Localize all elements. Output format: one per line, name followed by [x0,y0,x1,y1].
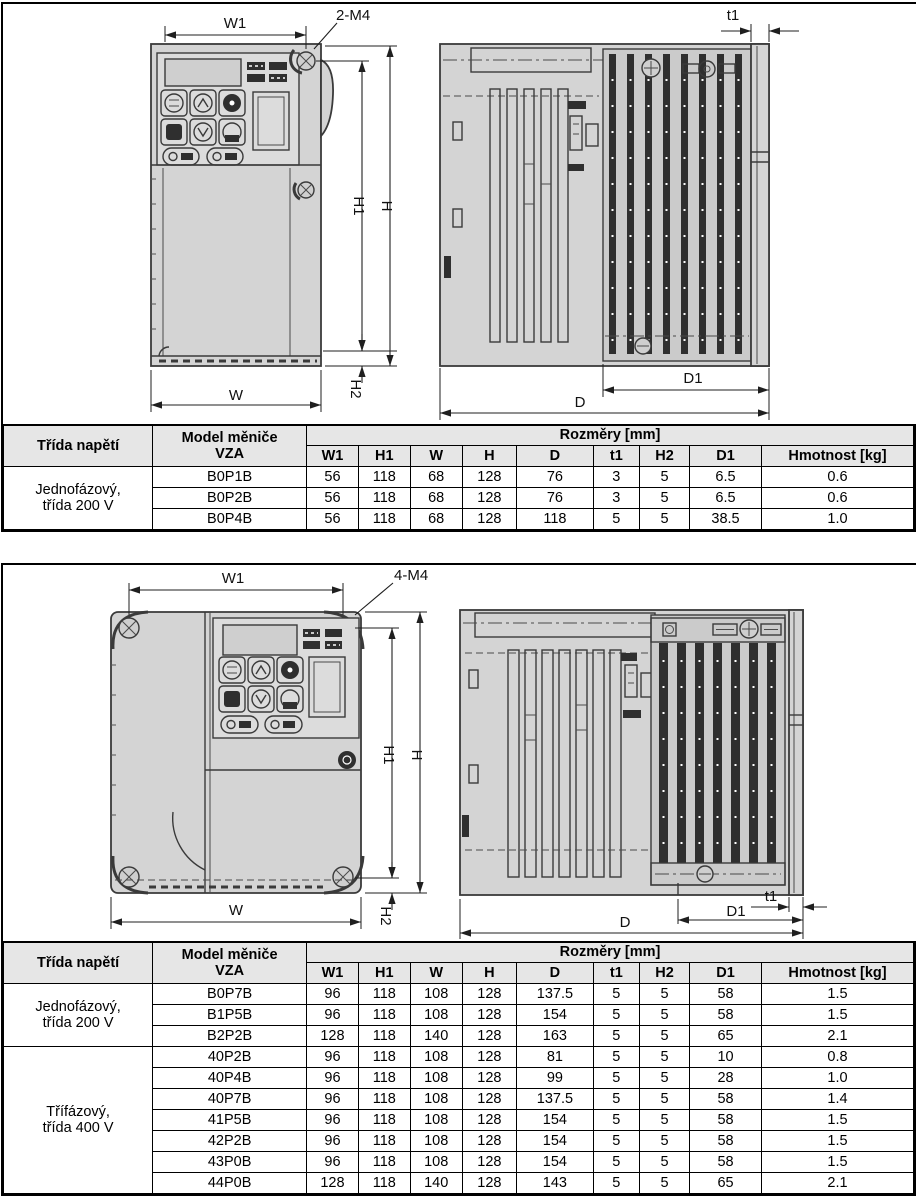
screw-slot-icon [697,866,713,882]
dim-value-cell: 128 [462,1005,517,1026]
dim-value-cell: 5 [593,1005,639,1026]
dim-value-cell: 108 [410,1131,462,1152]
header-col-d: D [517,446,593,467]
header-col-d1: D1 [690,963,762,984]
dim-w: W [151,370,321,412]
front-view-large: W1 4-M4 H H1 [111,567,428,929]
model-cell: B1P5B [153,1005,307,1026]
dim-value-cell: 5 [593,1089,639,1110]
side-view-small: t1 D1 D [440,7,799,420]
dim-value-cell: 143 [517,1173,593,1194]
dim-label-d: D [620,914,631,931]
dim-value-cell: 1.5 [761,1152,913,1173]
dim-value-cell: 56 [307,488,359,509]
header-col-w1: W1 [307,446,359,467]
header-col-h: H [462,963,517,984]
dim-value-cell: 5 [593,1110,639,1131]
screw-mid-right-icon [338,751,356,769]
voltage-class-cell: Jednofázový,třída 200 V [4,984,153,1047]
dim-value-cell: 154 [517,1131,593,1152]
mounting-flange [789,610,803,895]
dim-value-cell: 128 [462,488,517,509]
header-col-w: W [410,446,462,467]
dim-value-cell: 137.5 [517,1089,593,1110]
dim-value-cell: 0.8 [761,1047,913,1068]
dim-label-d1: D1 [683,370,702,387]
dim-value-cell: 140 [410,1173,462,1194]
dim-d: D [440,368,769,420]
dim-m4: 2-M4 [314,7,370,49]
header-dimensions: Rozměry [mm] [307,942,914,963]
dim-value-cell: 128 [462,1068,517,1089]
header-col-weight: Hmotnost [kg] [761,963,913,984]
dim-value-cell: 6.5 [690,488,762,509]
table-row: Jednofázový,třída 200 VB0P1B561186812876… [4,467,914,488]
voltage-class-line: třída 200 V [6,498,150,514]
model-cell: 40P2B [153,1047,307,1068]
dim-value-cell: 118 [517,509,593,530]
dim-d: D [460,899,803,939]
dim-value-cell: 5 [640,1110,690,1131]
dim-value-cell: 1.5 [761,984,913,1005]
dim-value-cell: 0.6 [761,488,913,509]
dim-h2: H2 [377,862,394,926]
table-row: Třífázový,třída 400 V40P2B96118108128815… [4,1047,914,1068]
dim-value-cell: 118 [358,488,410,509]
dim-value-cell: 1.5 [761,1131,913,1152]
display [223,625,297,655]
dim-label-h1: H1 [380,745,397,764]
dim-value-cell: 5 [640,467,690,488]
dim-value-cell: 128 [462,1173,517,1194]
model-cell: B0P1B [153,467,307,488]
dim-value-cell: 56 [307,509,359,530]
dim-value-cell: 128 [462,1089,517,1110]
dim-value-cell: 128 [462,1110,517,1131]
dim-value-cell: 96 [307,984,359,1005]
header-col-h1: H1 [358,446,410,467]
dim-value-cell: 3 [593,488,639,509]
dim-value-cell: 5 [593,1047,639,1068]
dim-value-cell: 108 [410,1110,462,1131]
dim-value-cell: 5 [640,1173,690,1194]
dim-value-cell: 5 [640,1089,690,1110]
model-cell: 44P0B [153,1173,307,1194]
dim-value-cell: 118 [358,1131,410,1152]
figure2-drawing: W1 4-M4 H H1 [3,565,916,941]
dimensions-table-2: Třída napětí Model měniče VZA Rozměry [m… [3,941,914,1194]
screw-top-icon [642,59,660,77]
dim-value-cell: 163 [517,1026,593,1047]
header-voltage-class: Třída napětí [4,942,153,984]
dim-value-cell: 5 [640,1005,690,1026]
dim-value-cell: 96 [307,1152,359,1173]
header-col-w: W [410,963,462,984]
dim-value-cell: 5 [640,1068,690,1089]
dim-label-t1: t1 [765,888,778,905]
dim-d1: D1 [603,364,769,420]
header-col-d1: D1 [690,446,762,467]
header-col-weight: Hmotnost [kg] [761,446,913,467]
dim-value-cell: 5 [640,984,690,1005]
dim-value-cell: 108 [410,1005,462,1026]
dim-value-cell: 5 [593,1068,639,1089]
dim-value-cell: 128 [462,984,517,1005]
dim-value-cell: 108 [410,1047,462,1068]
dim-value-cell: 128 [462,1131,517,1152]
dim-value-cell: 128 [307,1026,359,1047]
dim-label-h2: H2 [347,379,364,398]
dim-value-cell: 38.5 [690,509,762,530]
dim-value-cell: 58 [690,984,762,1005]
dim-value-cell: 108 [410,1089,462,1110]
dim-value-cell: 154 [517,1152,593,1173]
dimensions-table-1: Třída napětí Model měniče VZA Rozměry [m… [3,424,914,530]
dim-value-cell: 58 [690,1152,762,1173]
dim-value-cell: 76 [517,488,593,509]
dim-value-cell: 118 [358,1005,410,1026]
dim-value-cell: 5 [593,1131,639,1152]
voltage-class-cell: Jednofázový,třída 200 V [4,467,153,530]
model-cell: 42P2B [153,1131,307,1152]
dim-value-cell: 5 [640,1026,690,1047]
dim-value-cell: 96 [307,1068,359,1089]
dim-value-cell: 1.5 [761,1005,913,1026]
dim-value-cell: 118 [358,1089,410,1110]
heatsink [651,615,785,895]
dim-value-cell: 5 [593,1152,639,1173]
dim-value-cell: 118 [358,1110,410,1131]
dim-value-cell: 3 [593,467,639,488]
dim-value-cell: 118 [358,1068,410,1089]
dim-value-cell: 118 [358,1173,410,1194]
dim-value-cell: 5 [640,1047,690,1068]
dim-value-cell: 96 [307,1131,359,1152]
dim-value-cell: 2.1 [761,1026,913,1047]
dim-m4: 4-M4 [355,567,428,615]
model-cell: B0P2B [153,488,307,509]
dim-value-cell: 128 [462,1026,517,1047]
dim-label-h: H [408,750,425,761]
voltage-class-line: třída 400 V [6,1120,150,1136]
side-flange [321,60,333,136]
header-dimensions: Rozměry [mm] [307,425,914,446]
dim-value-cell: 68 [410,509,462,530]
dim-value-cell: 56 [307,467,359,488]
voltage-class-line: Jednofázový, [6,482,150,498]
dim-value-cell: 58 [690,1131,762,1152]
header-voltage-class: Třída napětí [4,425,153,467]
heatsink [603,49,751,361]
model-cell: 40P7B [153,1089,307,1110]
dim-value-cell: 108 [410,1068,462,1089]
dim-value-cell: 81 [517,1047,593,1068]
header-model: Model měniče VZA [153,425,307,467]
dim-value-cell: 96 [307,1005,359,1026]
dim-value-cell: 118 [358,1152,410,1173]
model-cell: 41P5B [153,1110,307,1131]
display [165,59,241,86]
header-col-h2: H2 [640,963,690,984]
dim-value-cell: 140 [410,1026,462,1047]
dim-value-cell: 5 [593,1026,639,1047]
header-col-w1: W1 [307,963,359,984]
dim-value-cell: 154 [517,1110,593,1131]
header-model-line1: Model měniče [155,947,304,963]
dim-value-cell: 96 [307,1089,359,1110]
dim-t1: t1 [721,7,799,42]
dim-value-cell: 58 [690,1089,762,1110]
dim-value-cell: 6.5 [690,467,762,488]
dim-value-cell: 118 [358,984,410,1005]
header-model-line2: VZA [155,446,304,462]
header-col-h1: H1 [358,963,410,984]
dim-value-cell: 65 [690,1026,762,1047]
model-cell: 40P4B [153,1068,307,1089]
dim-value-cell: 10 [690,1047,762,1068]
voltage-class-cell: Třífázový,třída 400 V [4,1047,153,1194]
dim-value-cell: 68 [410,467,462,488]
dim-value-cell: 118 [358,1047,410,1068]
dim-value-cell: 76 [517,467,593,488]
dim-label-d: D [575,394,586,411]
section-large-drive: W1 4-M4 H H1 [1,563,916,1196]
dim-value-cell: 5 [640,509,690,530]
dim-label-h1: H1 [350,196,367,215]
dim-value-cell: 1.0 [761,509,913,530]
dim-value-cell: 96 [307,1110,359,1131]
header-col-t1: t1 [593,963,639,984]
dim-value-cell: 5 [593,1173,639,1194]
dim-value-cell: 118 [358,1026,410,1047]
dim-label-w1: W1 [222,570,245,587]
keypad [157,53,299,165]
model-cell: B0P7B [153,984,307,1005]
header-col-t1: t1 [593,446,639,467]
dim-value-cell: 128 [462,1047,517,1068]
dim-value-cell: 1.0 [761,1068,913,1089]
header-model-line2: VZA [155,963,304,979]
dim-value-cell: 5 [640,488,690,509]
dim-label-w1: W1 [224,15,247,32]
header-col-d: D [517,963,593,984]
voltage-class-line: Jednofázový, [6,999,150,1015]
dim-value-cell: 118 [358,509,410,530]
dim-value-cell: 128 [462,467,517,488]
dim-value-cell: 137.5 [517,984,593,1005]
dim-value-cell: 2.1 [761,1173,913,1194]
dim-label-h2: H2 [377,906,394,925]
dim-value-cell: 108 [410,1152,462,1173]
header-col-h: H [462,446,517,467]
model-cell: B2P2B [153,1026,307,1047]
dim-value-cell: 0.6 [761,467,913,488]
voltage-class-line: Třífázový, [6,1104,150,1120]
dim-value-cell: 118 [358,467,410,488]
header-col-h2: H2 [640,446,690,467]
dim-value-cell: 1.5 [761,1110,913,1131]
dim-value-cell: 99 [517,1068,593,1089]
datasheet-page: W1 2-M4 H H1 [0,0,917,1198]
screw-slot-icon [635,338,651,354]
front-view-small: W1 2-M4 H H1 [151,7,397,412]
model-cell: 43P0B [153,1152,307,1173]
dim-value-cell: 1.4 [761,1089,913,1110]
dim-label-m4: 4-M4 [394,567,428,584]
dim-w1: W1 [129,570,343,615]
voltage-class-line: třída 200 V [6,1015,150,1031]
dim-label-m4: 2-M4 [336,7,370,24]
dim-value-cell: 28 [690,1068,762,1089]
dim-w: W [111,897,361,929]
table-row: Jednofázový,třída 200 VB0P7B961181081281… [4,984,914,1005]
dim-value-cell: 128 [462,1152,517,1173]
dim-value-cell: 96 [307,1047,359,1068]
side-view-large: t1 D1 D [460,610,827,939]
section-small-drive: W1 2-M4 H H1 [1,2,916,532]
dim-value-cell: 128 [462,509,517,530]
dim-value-cell: 128 [307,1173,359,1194]
dim-value-cell: 68 [410,488,462,509]
keypad [213,618,359,738]
model-cell: B0P4B [153,509,307,530]
dim-value-cell: 108 [410,984,462,1005]
header-model-line1: Model měniče [155,430,304,446]
dim-value-cell: 65 [690,1173,762,1194]
mounting-flange [751,44,769,366]
dim-label-w: W [229,387,244,404]
dim-value-cell: 5 [593,984,639,1005]
header-model: Model měniče VZA [153,942,307,984]
dim-label-h: H [378,201,395,212]
dim-value-cell: 154 [517,1005,593,1026]
dim-label-t1: t1 [727,7,740,24]
figure1-drawing: W1 2-M4 H H1 [3,4,916,424]
dim-value-cell: 5 [640,1131,690,1152]
dim-label-d1: D1 [726,903,745,920]
dim-value-cell: 58 [690,1110,762,1131]
dim-value-cell: 5 [593,509,639,530]
dim-label-w: W [229,902,244,919]
dim-value-cell: 58 [690,1005,762,1026]
dim-value-cell: 5 [640,1152,690,1173]
